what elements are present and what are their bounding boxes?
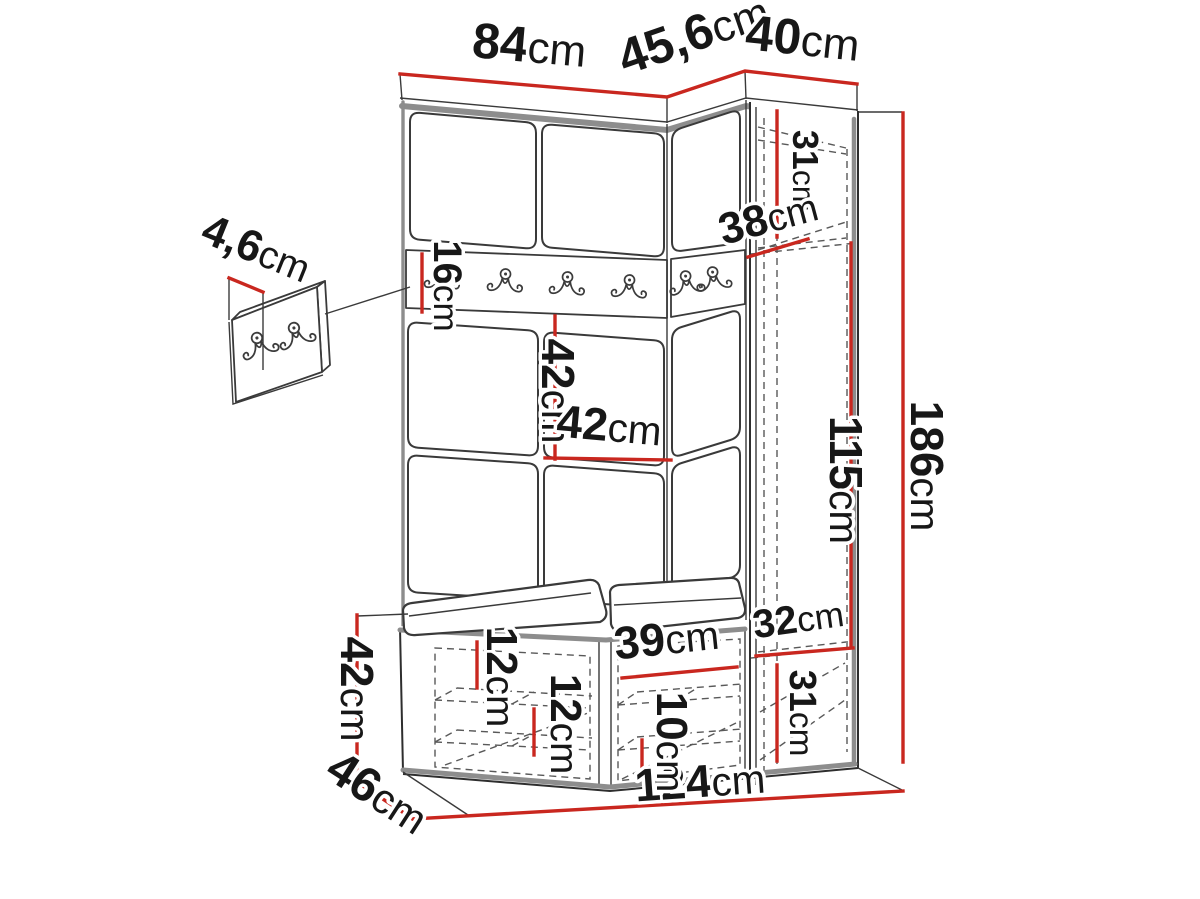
upholstered-panel — [672, 447, 740, 593]
dim-label-bench-height: 42cm — [331, 636, 383, 741]
hook-rail-angled — [671, 250, 745, 317]
dim-label-rail-height: 16cm — [425, 240, 469, 331]
dim-label-cabinet-middle-height: 115cm — [820, 416, 872, 544]
upholstered-panel — [410, 113, 536, 248]
dim-line-panel-width — [545, 458, 671, 460]
dim-label-shelf-spacing-b: 12cm — [541, 674, 590, 775]
diagram-canvas: 84cm 45,6cm 40cm 4,6cm 16cm 31cm 38cm 42… — [0, 0, 1200, 899]
dim-label-total-height: 186cm — [901, 401, 953, 532]
dim-label-panel-thickness: 4,6cm — [195, 205, 318, 293]
dim-label-shoe-shelf-spacing: 10cm — [647, 692, 696, 793]
dim-label-shelf-spacing-a: 12cm — [477, 627, 526, 728]
upholstered-panel — [408, 456, 538, 600]
upholstered-panel — [542, 125, 664, 257]
pointer-line — [325, 287, 410, 314]
dim-label-top-right-width: 40cm — [743, 4, 863, 72]
dim-label-top-left-width: 84cm — [470, 12, 589, 78]
detail-panel — [229, 281, 410, 404]
upholstered-panel — [408, 323, 538, 456]
dim-label-cabinet-bottom-height: 31cm — [781, 670, 823, 757]
furniture-dimension-diagram: 84cm 45,6cm 40cm 4,6cm 16cm 31cm 38cm 42… — [0, 0, 1200, 899]
upholstered-panel — [672, 311, 740, 455]
dim-line-panel-thickness — [229, 278, 263, 292]
